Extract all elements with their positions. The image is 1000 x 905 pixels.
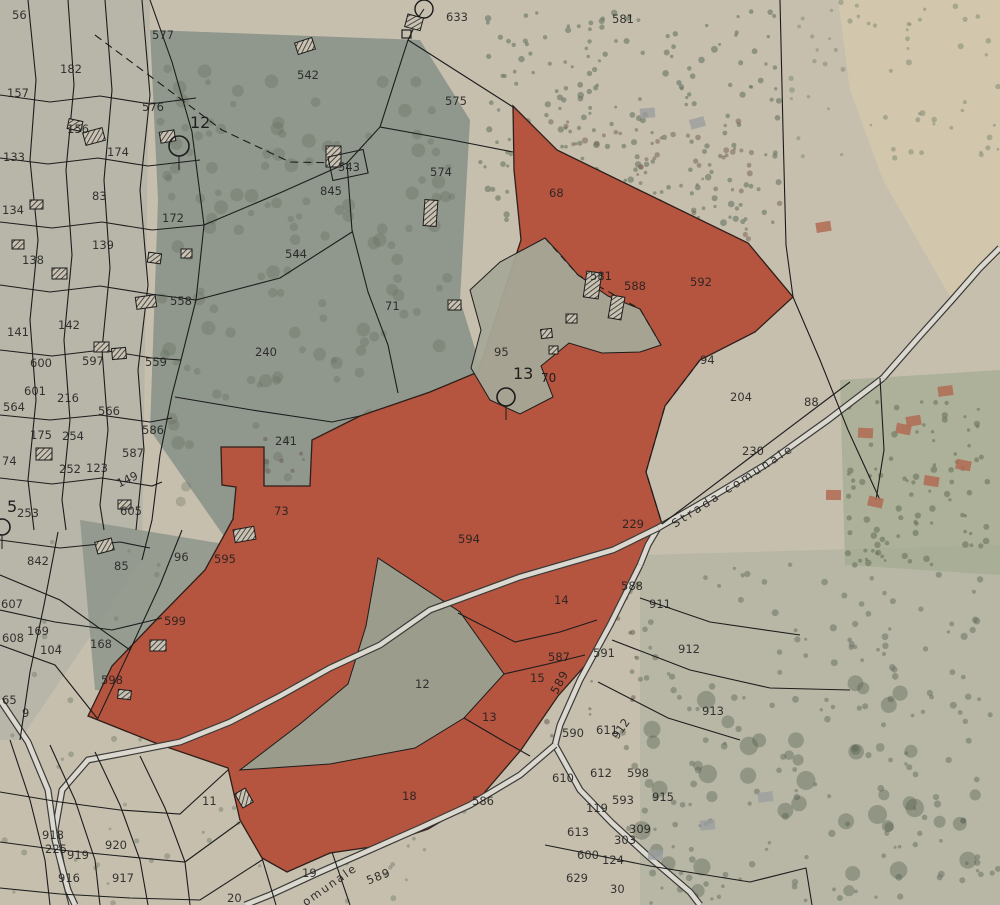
parcel-label: 601 <box>24 384 46 398</box>
parcel-label: 14 <box>554 593 569 607</box>
parcel-label: 254 <box>62 429 84 443</box>
parcel-label: 916 <box>58 871 80 885</box>
parcel-label: 913 <box>702 704 724 718</box>
parcel-label: 577 <box>152 28 174 42</box>
parcel-label: 123 <box>86 461 108 475</box>
parcel-label: 917 <box>112 871 134 885</box>
building-footprint <box>30 200 43 209</box>
parcel-label: 85 <box>114 559 129 573</box>
building-footprint <box>549 346 558 354</box>
parcel-label: 65 <box>2 693 17 707</box>
field-southeast <box>640 545 1000 905</box>
parcel-label: 216 <box>57 391 79 405</box>
parcel-label: 912 <box>678 642 700 656</box>
parcel-label: 172 <box>162 211 184 225</box>
building-footprint <box>423 200 438 227</box>
parcel-label: 587 <box>122 446 144 460</box>
parcel-label: 574 <box>430 165 452 179</box>
parcel-label: 175 <box>30 428 52 442</box>
parcel-label: 225 <box>45 842 67 856</box>
orchard-east <box>840 370 1000 575</box>
parcel-label: 610 <box>552 771 574 785</box>
parcel-label: 70 <box>541 371 556 385</box>
building-footprint <box>135 295 156 310</box>
parcel-label: 20 <box>227 891 242 905</box>
building-footprint <box>159 130 176 143</box>
parcel-label: 588 <box>621 579 643 593</box>
parcel-label: 598 <box>627 766 649 780</box>
parcel-label: 303 <box>614 833 636 847</box>
parcel-label: 73 <box>274 504 289 518</box>
parcel-label: 575 <box>445 94 467 108</box>
parcel-label: 587 <box>548 650 570 664</box>
parcel-label: 124 <box>602 853 624 867</box>
parcel-label: 71 <box>385 299 400 313</box>
parcel-label: 918 <box>42 828 64 842</box>
parcel-label: 564 <box>3 400 25 414</box>
parcel-label: 142 <box>58 318 80 332</box>
building-footprint <box>12 240 24 249</box>
parcel-label: 15 <box>530 671 545 685</box>
parcel-label: 229 <box>622 517 644 531</box>
parcel-label: 253 <box>17 506 39 520</box>
parcel-label: 168 <box>90 637 112 651</box>
house-roof <box>826 490 841 500</box>
parcel-label: 157 <box>7 86 29 100</box>
map-viewport[interactable]: 1213705565776335811825421575755761561745… <box>0 0 1000 905</box>
parcel-label: 252 <box>59 462 81 476</box>
parcel-label: 598 <box>101 673 123 687</box>
building-footprint <box>181 249 192 258</box>
building-footprint <box>566 314 577 323</box>
parcel-label: 230 <box>742 444 764 458</box>
parcel-label: 542 <box>297 68 319 82</box>
parcel-label: 30 <box>610 882 625 896</box>
parcel-label: 182 <box>60 62 82 76</box>
parcel-label: 88 <box>804 395 819 409</box>
building-footprint <box>147 252 161 264</box>
parcel-label: 591 <box>593 646 615 660</box>
parcel-label: 597 <box>82 354 104 368</box>
parcel-label: 586 <box>142 423 164 437</box>
parcel-label: 845 <box>320 184 342 198</box>
house-roof <box>700 819 716 830</box>
house-roof <box>937 385 953 397</box>
parcel-label: 174 <box>107 145 129 159</box>
parcel-label: 581 <box>612 12 634 26</box>
parcel-label: 96 <box>174 550 189 564</box>
parcel-label: 842 <box>27 554 49 568</box>
building-footprint <box>94 342 109 352</box>
building-footprint <box>541 328 553 338</box>
parcel-label: 588 <box>624 279 646 293</box>
benchmark-label-5: 5 <box>7 497 17 516</box>
parcel-label: 240 <box>255 345 277 359</box>
parcel-label: 605 <box>120 504 142 518</box>
parcel-label: 9 <box>22 706 29 720</box>
parcel-label: 629 <box>566 871 588 885</box>
parcel-label: 594 <box>458 532 480 546</box>
parcel-label: 558 <box>170 294 192 308</box>
parcel-label: 241 <box>275 434 297 448</box>
parcel-label: 586 <box>472 794 494 808</box>
parcel-label: 95 <box>494 345 509 359</box>
parcel-label: 592 <box>690 275 712 289</box>
parcel-label: 911 <box>649 597 671 611</box>
parcel-label: 590 <box>562 726 584 740</box>
building-footprint <box>150 640 166 651</box>
parcel-label: 600 <box>30 356 52 370</box>
house-roof <box>757 791 773 803</box>
parcel-label: 56 <box>12 8 27 22</box>
parcel-label: 566 <box>98 404 120 418</box>
parcel-label: 613 <box>567 825 589 839</box>
benchmark-label-12: 12 <box>190 113 210 132</box>
cadastral-map[interactable]: 1213705565776335811825421575755761561745… <box>0 0 1000 905</box>
building-footprint <box>118 689 132 699</box>
building-footprint <box>112 347 127 359</box>
parcel-label: 593 <box>612 793 634 807</box>
parcel-label: 915 <box>652 790 674 804</box>
parcel-label: 139 <box>92 238 114 252</box>
building-footprint <box>448 300 461 310</box>
parcel-label: 169 <box>27 624 49 638</box>
building-footprint <box>52 268 67 279</box>
parcel-label: 74 <box>2 454 17 468</box>
parcel-label: 920 <box>105 838 127 852</box>
parcel-label: 204 <box>730 390 752 404</box>
parcel-label: 607 <box>1 597 23 611</box>
parcel-label: 612 <box>590 766 612 780</box>
benchmark-label-13: 13 <box>513 364 533 383</box>
parcel-label: 138 <box>22 253 44 267</box>
parcel-label: 595 <box>214 552 236 566</box>
parcel-label: 11 <box>202 794 217 808</box>
parcel-label: 83 <box>92 189 107 203</box>
parcel-label: 600 <box>577 848 599 862</box>
parcel-label: 19 <box>302 866 317 880</box>
parcel-label: 12 <box>415 677 430 691</box>
parcel-label: 559 <box>145 355 167 369</box>
parcel-label: 141 <box>7 325 29 339</box>
parcel-label: 134 <box>2 203 24 217</box>
parcel-label: 543 <box>338 160 360 174</box>
parcel-label: 13 <box>482 710 497 724</box>
parcel-label: 581 <box>590 269 612 283</box>
parcel-label: 68 <box>549 186 564 200</box>
house-roof <box>640 107 656 118</box>
parcel-label: 576 <box>142 100 164 114</box>
parcel-label: 18 <box>402 789 417 803</box>
house-roof <box>858 428 874 439</box>
parcel-label: 608 <box>2 631 24 645</box>
parcel-label: 633 <box>446 10 468 24</box>
house-roof <box>648 850 664 861</box>
parcel-label: 156 <box>67 122 89 136</box>
building-footprint <box>36 448 52 460</box>
parcel-label: 919 <box>67 848 89 862</box>
parcel-label: 94 <box>700 353 715 367</box>
parcel-label: 544 <box>285 247 307 261</box>
parcel-label: 133 <box>3 150 25 164</box>
parcel-label: 119 <box>586 801 608 815</box>
parcel-label: 599 <box>164 614 186 628</box>
parcel-label: 104 <box>40 643 62 657</box>
